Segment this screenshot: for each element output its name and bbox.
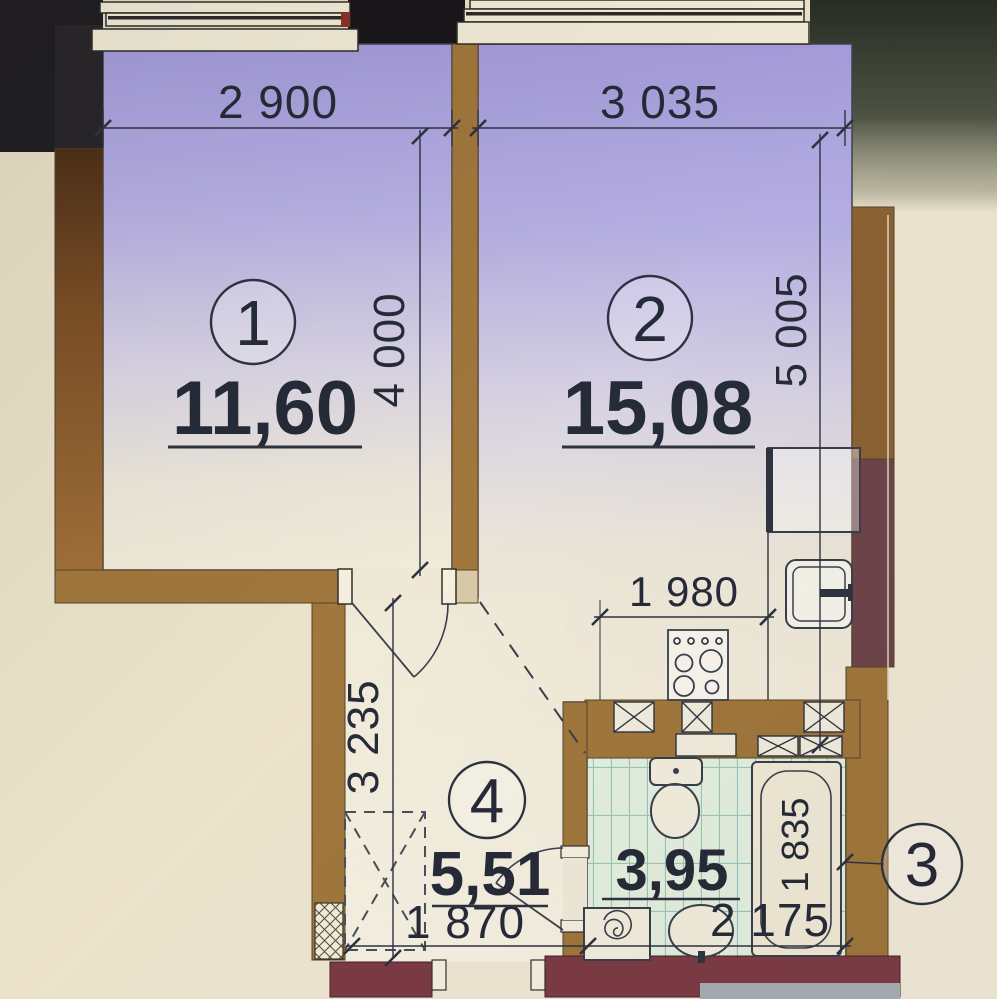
photo-shading — [0, 0, 997, 999]
floor-plan-photo: 2 900 3 035 4 000 5 005 1 980 3 235 1 87… — [0, 0, 997, 999]
floor-plan: 2 900 3 035 4 000 5 005 1 980 3 235 1 87… — [0, 0, 997, 999]
